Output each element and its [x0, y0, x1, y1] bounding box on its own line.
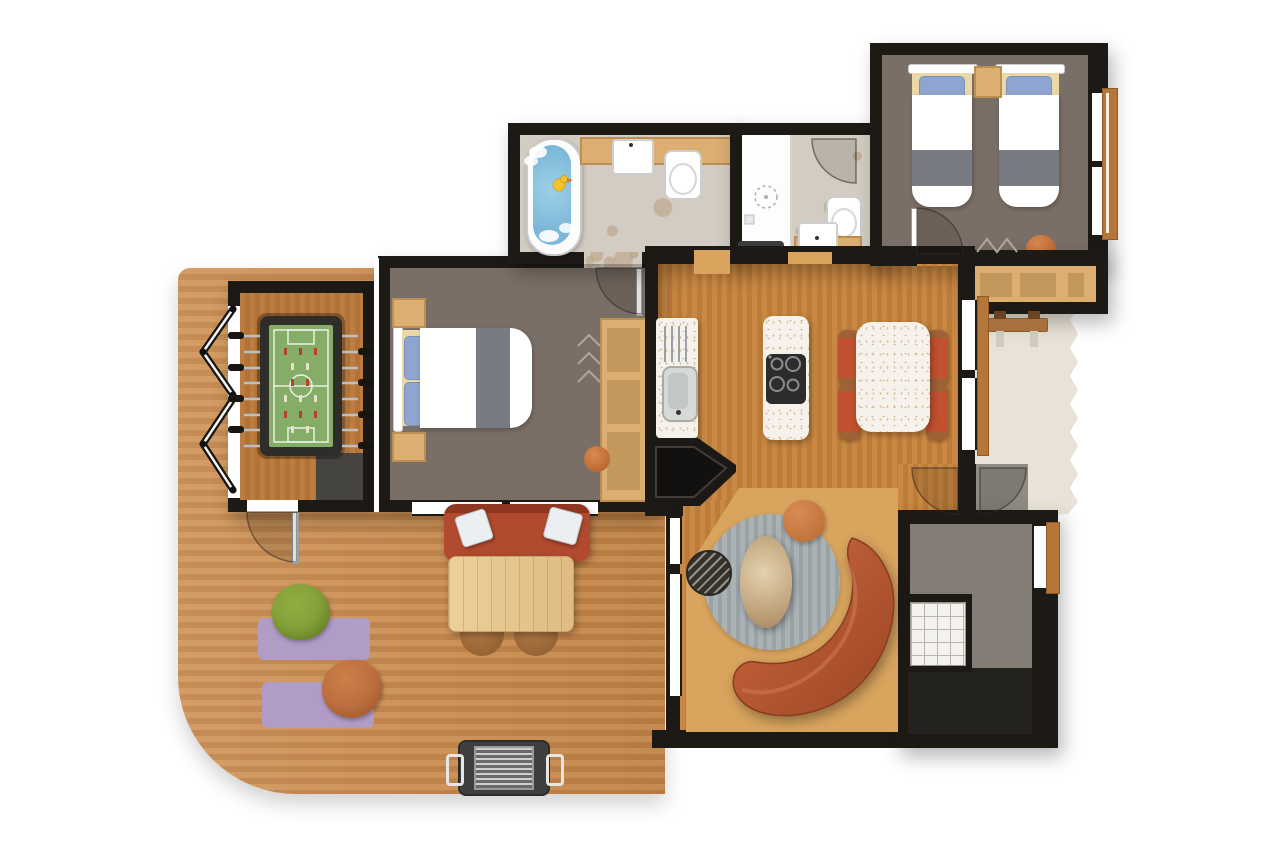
twin-bed-left	[908, 64, 976, 210]
room-utility	[896, 510, 1058, 748]
bathroom-door-threshold	[584, 252, 642, 264]
games-storage-unit	[316, 453, 363, 500]
wall-living-bottom	[652, 730, 920, 748]
wardrobe-shelf	[1020, 273, 1056, 297]
orange-pouf	[783, 500, 825, 542]
faucet	[629, 143, 633, 147]
drainer	[664, 326, 690, 362]
basket-orange	[584, 446, 610, 472]
double-bed	[393, 326, 535, 430]
bench-leg-right	[1030, 331, 1038, 347]
bench-leg-left	[996, 331, 1004, 347]
toilet	[664, 150, 702, 200]
wardrobe-twin	[972, 266, 1096, 302]
living-deck-window-1	[668, 510, 682, 564]
exterior-gap	[374, 258, 379, 512]
twin-bed-right	[995, 64, 1063, 210]
bench-foot-left	[994, 311, 1006, 319]
wardrobe-shelf	[607, 328, 640, 372]
floor-plan-canvas	[0, 0, 1280, 852]
stone-coffee-table	[740, 536, 792, 628]
grill-handle	[446, 754, 464, 786]
doormat-hall	[788, 252, 832, 264]
door-leaf	[292, 512, 299, 564]
room-bedroom-double	[378, 256, 658, 512]
window-sill-twin	[1102, 88, 1118, 240]
shower-tray	[742, 135, 792, 252]
living-deck-window-2	[668, 574, 682, 696]
sink-basin	[668, 373, 688, 409]
bath-water	[533, 145, 571, 245]
bench-foot-right	[1028, 311, 1040, 319]
room-bathroom	[508, 123, 742, 264]
window-sill-line	[1106, 93, 1109, 233]
bathtub	[526, 138, 582, 256]
toilet-bowl	[669, 163, 697, 195]
dining-table	[856, 322, 930, 432]
games-door-opening	[247, 500, 298, 512]
wardrobe-shelf	[607, 432, 640, 490]
cooktop	[766, 354, 806, 404]
nightstand-twin	[974, 66, 1002, 98]
outdoor-table	[448, 556, 574, 632]
wardrobe-double	[600, 318, 650, 502]
faucet	[815, 236, 819, 240]
room-bedroom-twin	[870, 43, 1108, 266]
kitchen-window-1	[960, 300, 977, 370]
vanity-sink	[612, 139, 654, 175]
blanket-band	[476, 328, 510, 428]
door-leaf	[636, 268, 643, 316]
nightstand-top	[392, 298, 426, 328]
tile-unit	[910, 602, 966, 666]
blanket-band	[999, 150, 1059, 186]
entrance-vestibule-floor	[976, 464, 1028, 516]
doormat-kitchen	[694, 250, 730, 274]
folding-door-track	[228, 306, 240, 498]
patterned-pouf	[686, 550, 732, 596]
window-sill-utility	[1046, 522, 1060, 594]
room-shower	[730, 123, 888, 264]
grill-handle	[546, 754, 564, 786]
room-games	[228, 281, 375, 512]
kitchen-window-2	[960, 378, 977, 450]
grill-grate	[474, 746, 534, 790]
garden-bench	[988, 318, 1048, 332]
wardrobe-shelf	[1068, 273, 1084, 297]
blanket-band	[912, 150, 972, 186]
nightstand-bottom	[392, 432, 426, 462]
wardrobe-shelf	[607, 380, 640, 424]
kitchen-faucet	[676, 410, 681, 415]
vanity-counter	[580, 137, 732, 165]
green-beanbag	[272, 584, 330, 640]
utility-dark-zone	[908, 668, 1032, 734]
wardrobe-shelf	[980, 273, 1012, 297]
